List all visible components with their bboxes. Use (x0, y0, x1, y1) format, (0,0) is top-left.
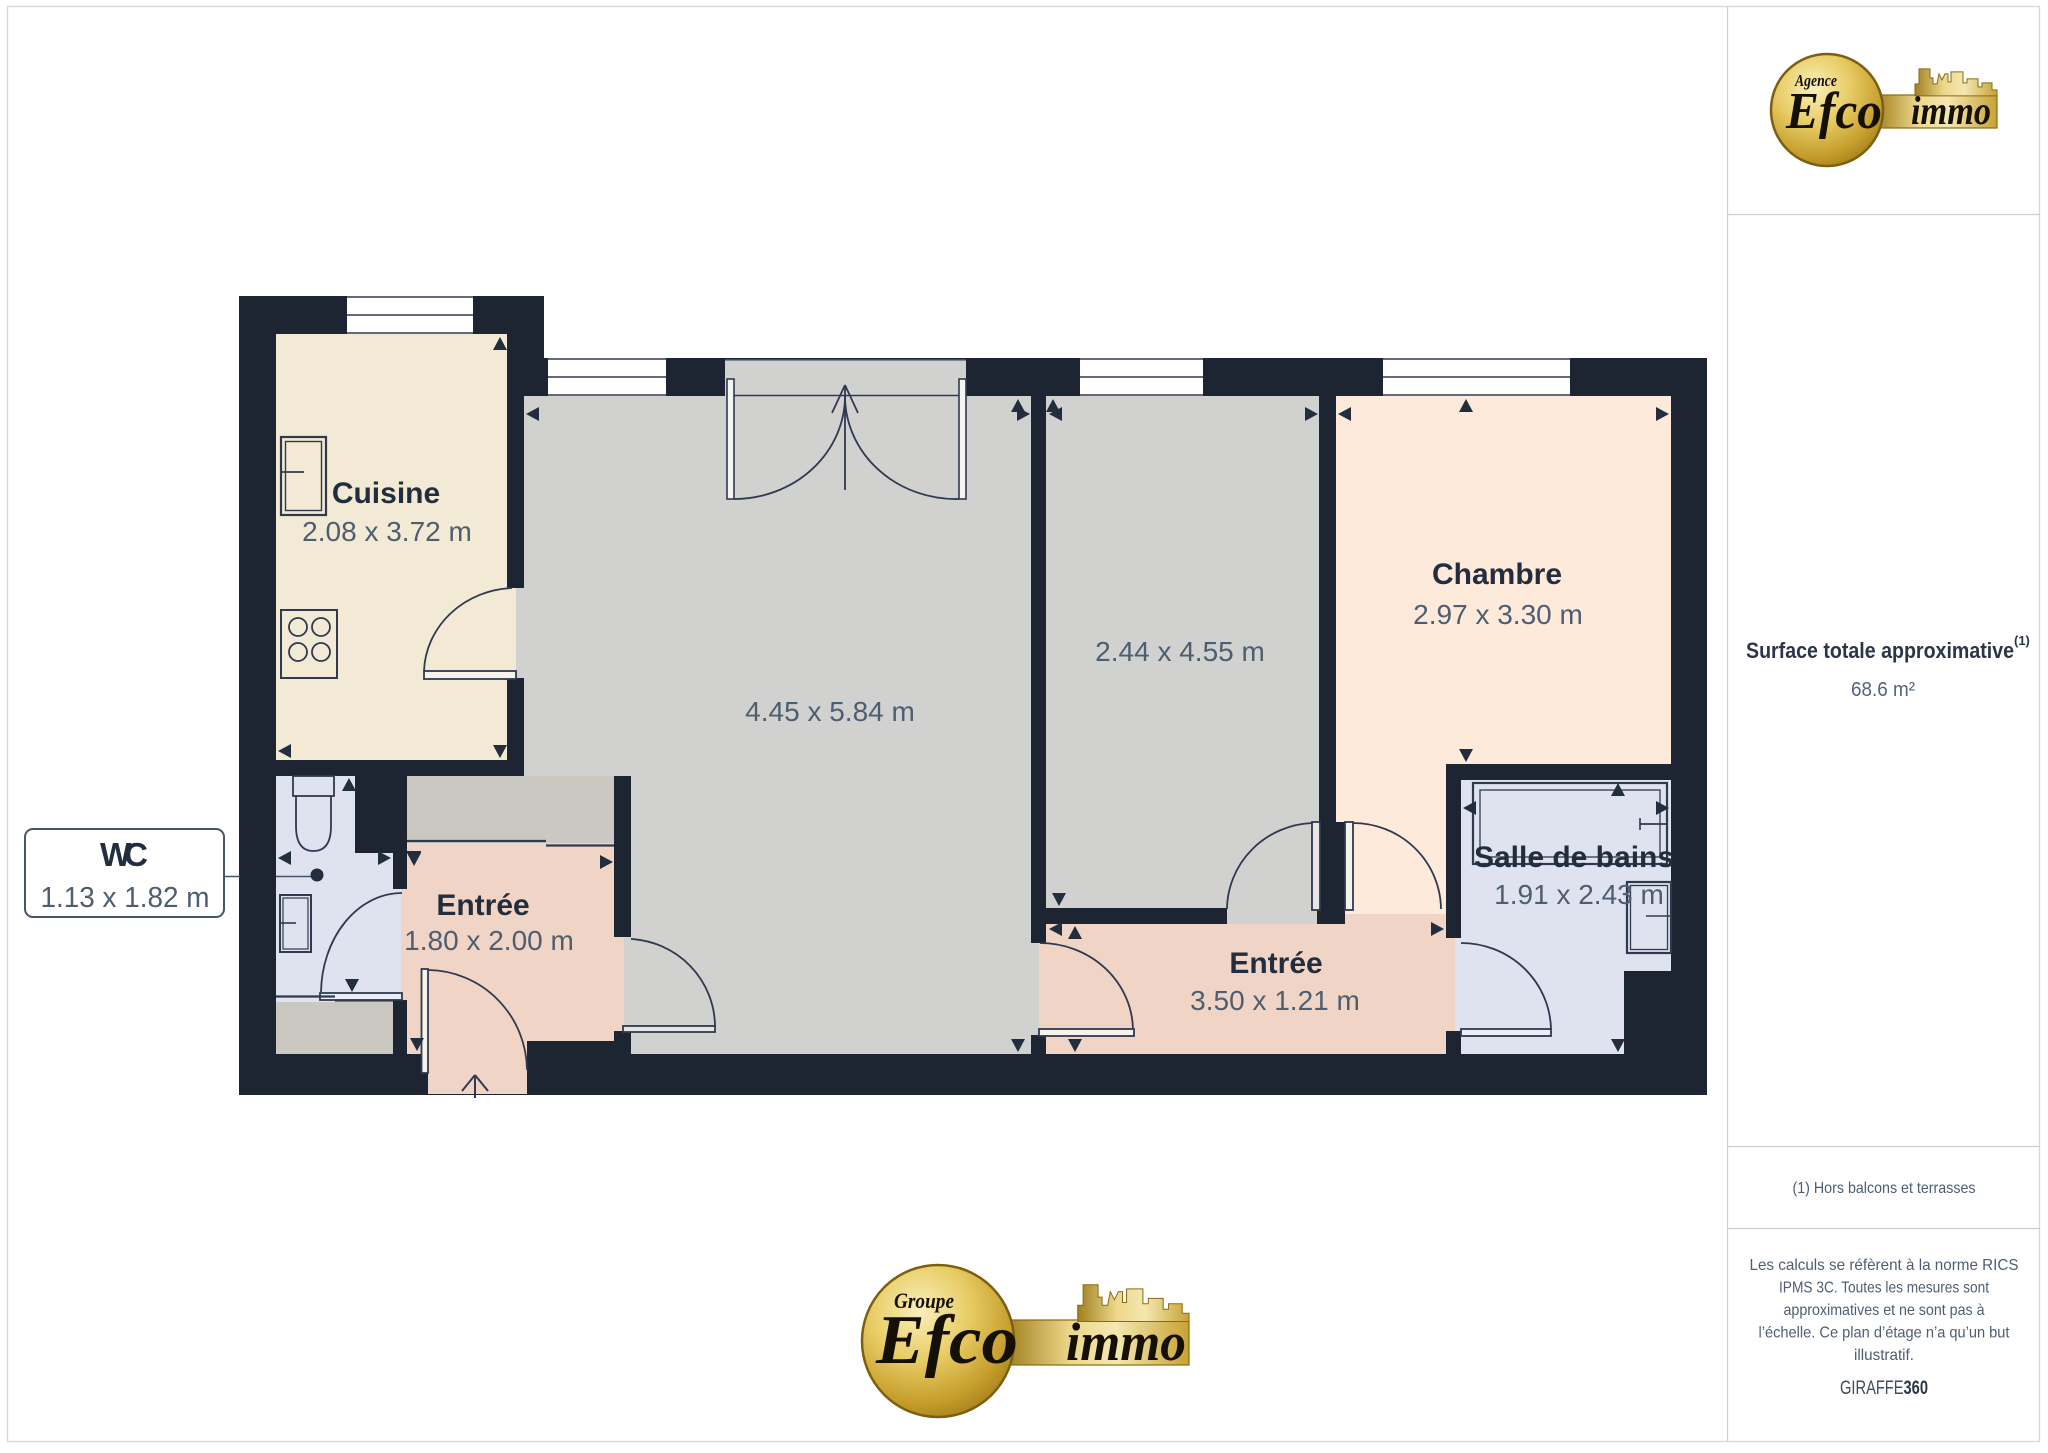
svg-text:immo: immo (1066, 1312, 1186, 1372)
svg-text:(1): (1) (2014, 633, 2030, 648)
svg-text:(1) Hors balcons et terrasses: (1) Hors balcons et terrasses (1793, 1180, 1976, 1197)
svg-text:Efco: Efco (1785, 83, 1882, 140)
svg-text:2.97 x 3.30 m: 2.97 x 3.30 m (1413, 599, 1583, 630)
svg-text:1.91 x 2.43 m: 1.91 x 2.43 m (1494, 879, 1664, 910)
svg-text:2.44 x 4.55 m: 2.44 x 4.55 m (1095, 636, 1265, 667)
svg-text:Entrée: Entrée (436, 889, 529, 922)
svg-text:immo: immo (1911, 88, 1991, 133)
svg-text:WC: WC (100, 836, 148, 873)
svg-text:Chambre: Chambre (1432, 558, 1562, 591)
svg-text:Les calculs se réfèrent à la n: Les calculs se réfèrent à la norme RICS (1750, 1257, 2019, 1274)
svg-text:Efco: Efco (875, 1302, 1018, 1379)
svg-text:68.6 m²: 68.6 m² (1851, 679, 1915, 701)
svg-text:3.50 x 1.21 m: 3.50 x 1.21 m (1190, 985, 1360, 1016)
svg-text:GIRAFFE360: GIRAFFE360 (1840, 1378, 1928, 1399)
svg-text:1.80 x 2.00 m: 1.80 x 2.00 m (404, 925, 574, 956)
svg-text:approximatives et ne sont pas: approximatives et ne sont pas à (1784, 1302, 1985, 1319)
svg-text:Salle de bains: Salle de bains (1474, 841, 1674, 874)
svg-text:1.13 x 1.82 m: 1.13 x 1.82 m (41, 882, 210, 914)
svg-text:2.08 x 3.72 m: 2.08 x 3.72 m (302, 516, 472, 547)
svg-text:4.45 x 5.84 m: 4.45 x 5.84 m (745, 696, 915, 727)
svg-text:Cuisine: Cuisine (332, 477, 440, 510)
svg-text:l’échelle. Ce plan d’étage n’a: l’échelle. Ce plan d’étage n’a qu’un but (1759, 1325, 2010, 1342)
svg-text:IPMS 3C. Toutes les mesures so: IPMS 3C. Toutes les mesures sont (1779, 1280, 1989, 1297)
svg-text:Entrée: Entrée (1229, 947, 1322, 980)
svg-text:Surface totale approximative: Surface totale approximative (1746, 638, 2014, 663)
svg-text:illustratif.: illustratif. (1854, 1347, 1914, 1364)
